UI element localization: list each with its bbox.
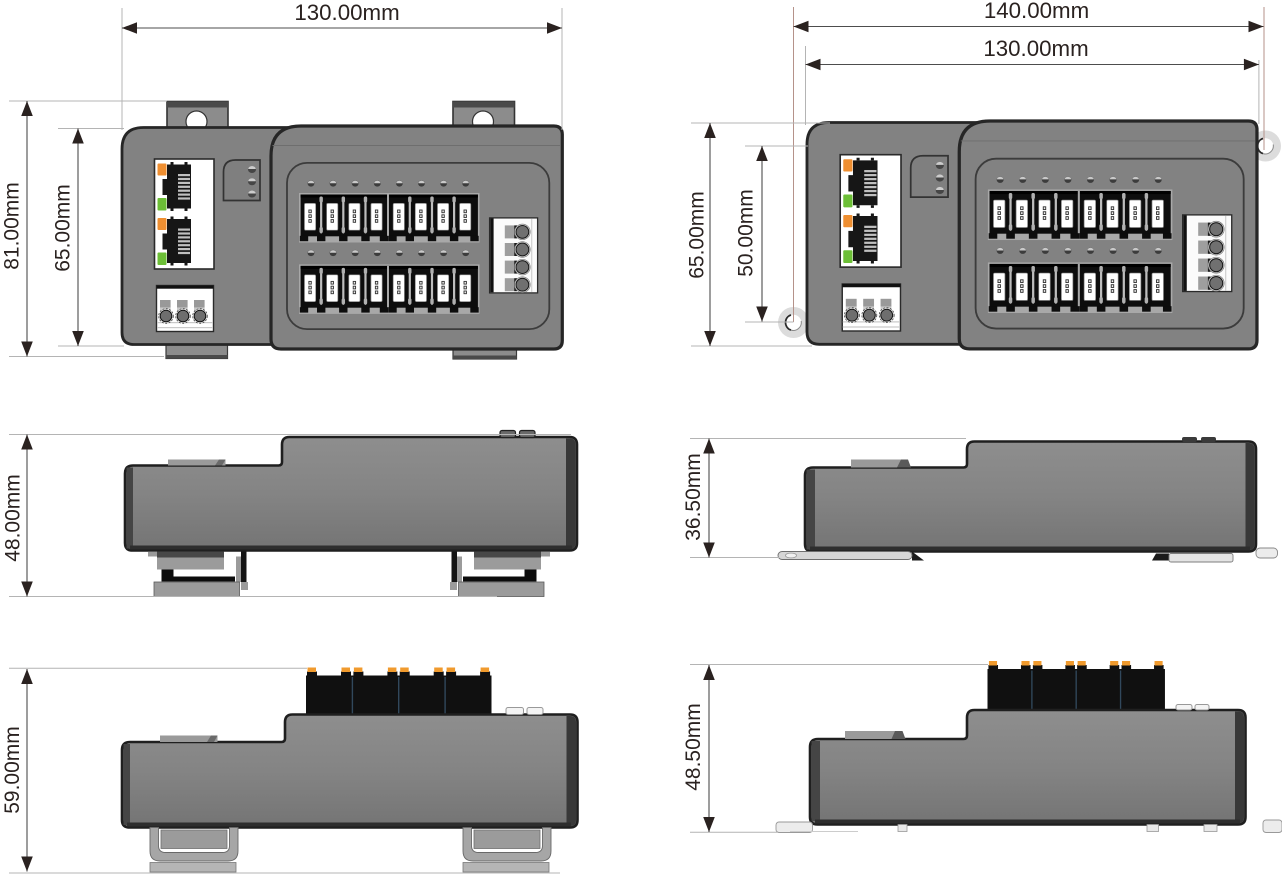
svg-text:48.00mm: 48.00mm: [1, 474, 24, 562]
svg-text:50.00mm: 50.00mm: [735, 189, 758, 277]
svg-text:130.00mm: 130.00mm: [294, 0, 399, 25]
svg-text:130.00mm: 130.00mm: [983, 36, 1088, 61]
svg-text:65.00mm: 65.00mm: [52, 184, 75, 272]
svg-text:140.00mm: 140.00mm: [984, 0, 1089, 23]
svg-text:36.50mm: 36.50mm: [682, 453, 705, 541]
svg-text:48.50mm: 48.50mm: [682, 703, 705, 791]
svg-text:65.00mm: 65.00mm: [686, 191, 709, 279]
svg-text:59.00mm: 59.00mm: [1, 726, 24, 814]
svg-text:81.00mm: 81.00mm: [1, 182, 24, 270]
